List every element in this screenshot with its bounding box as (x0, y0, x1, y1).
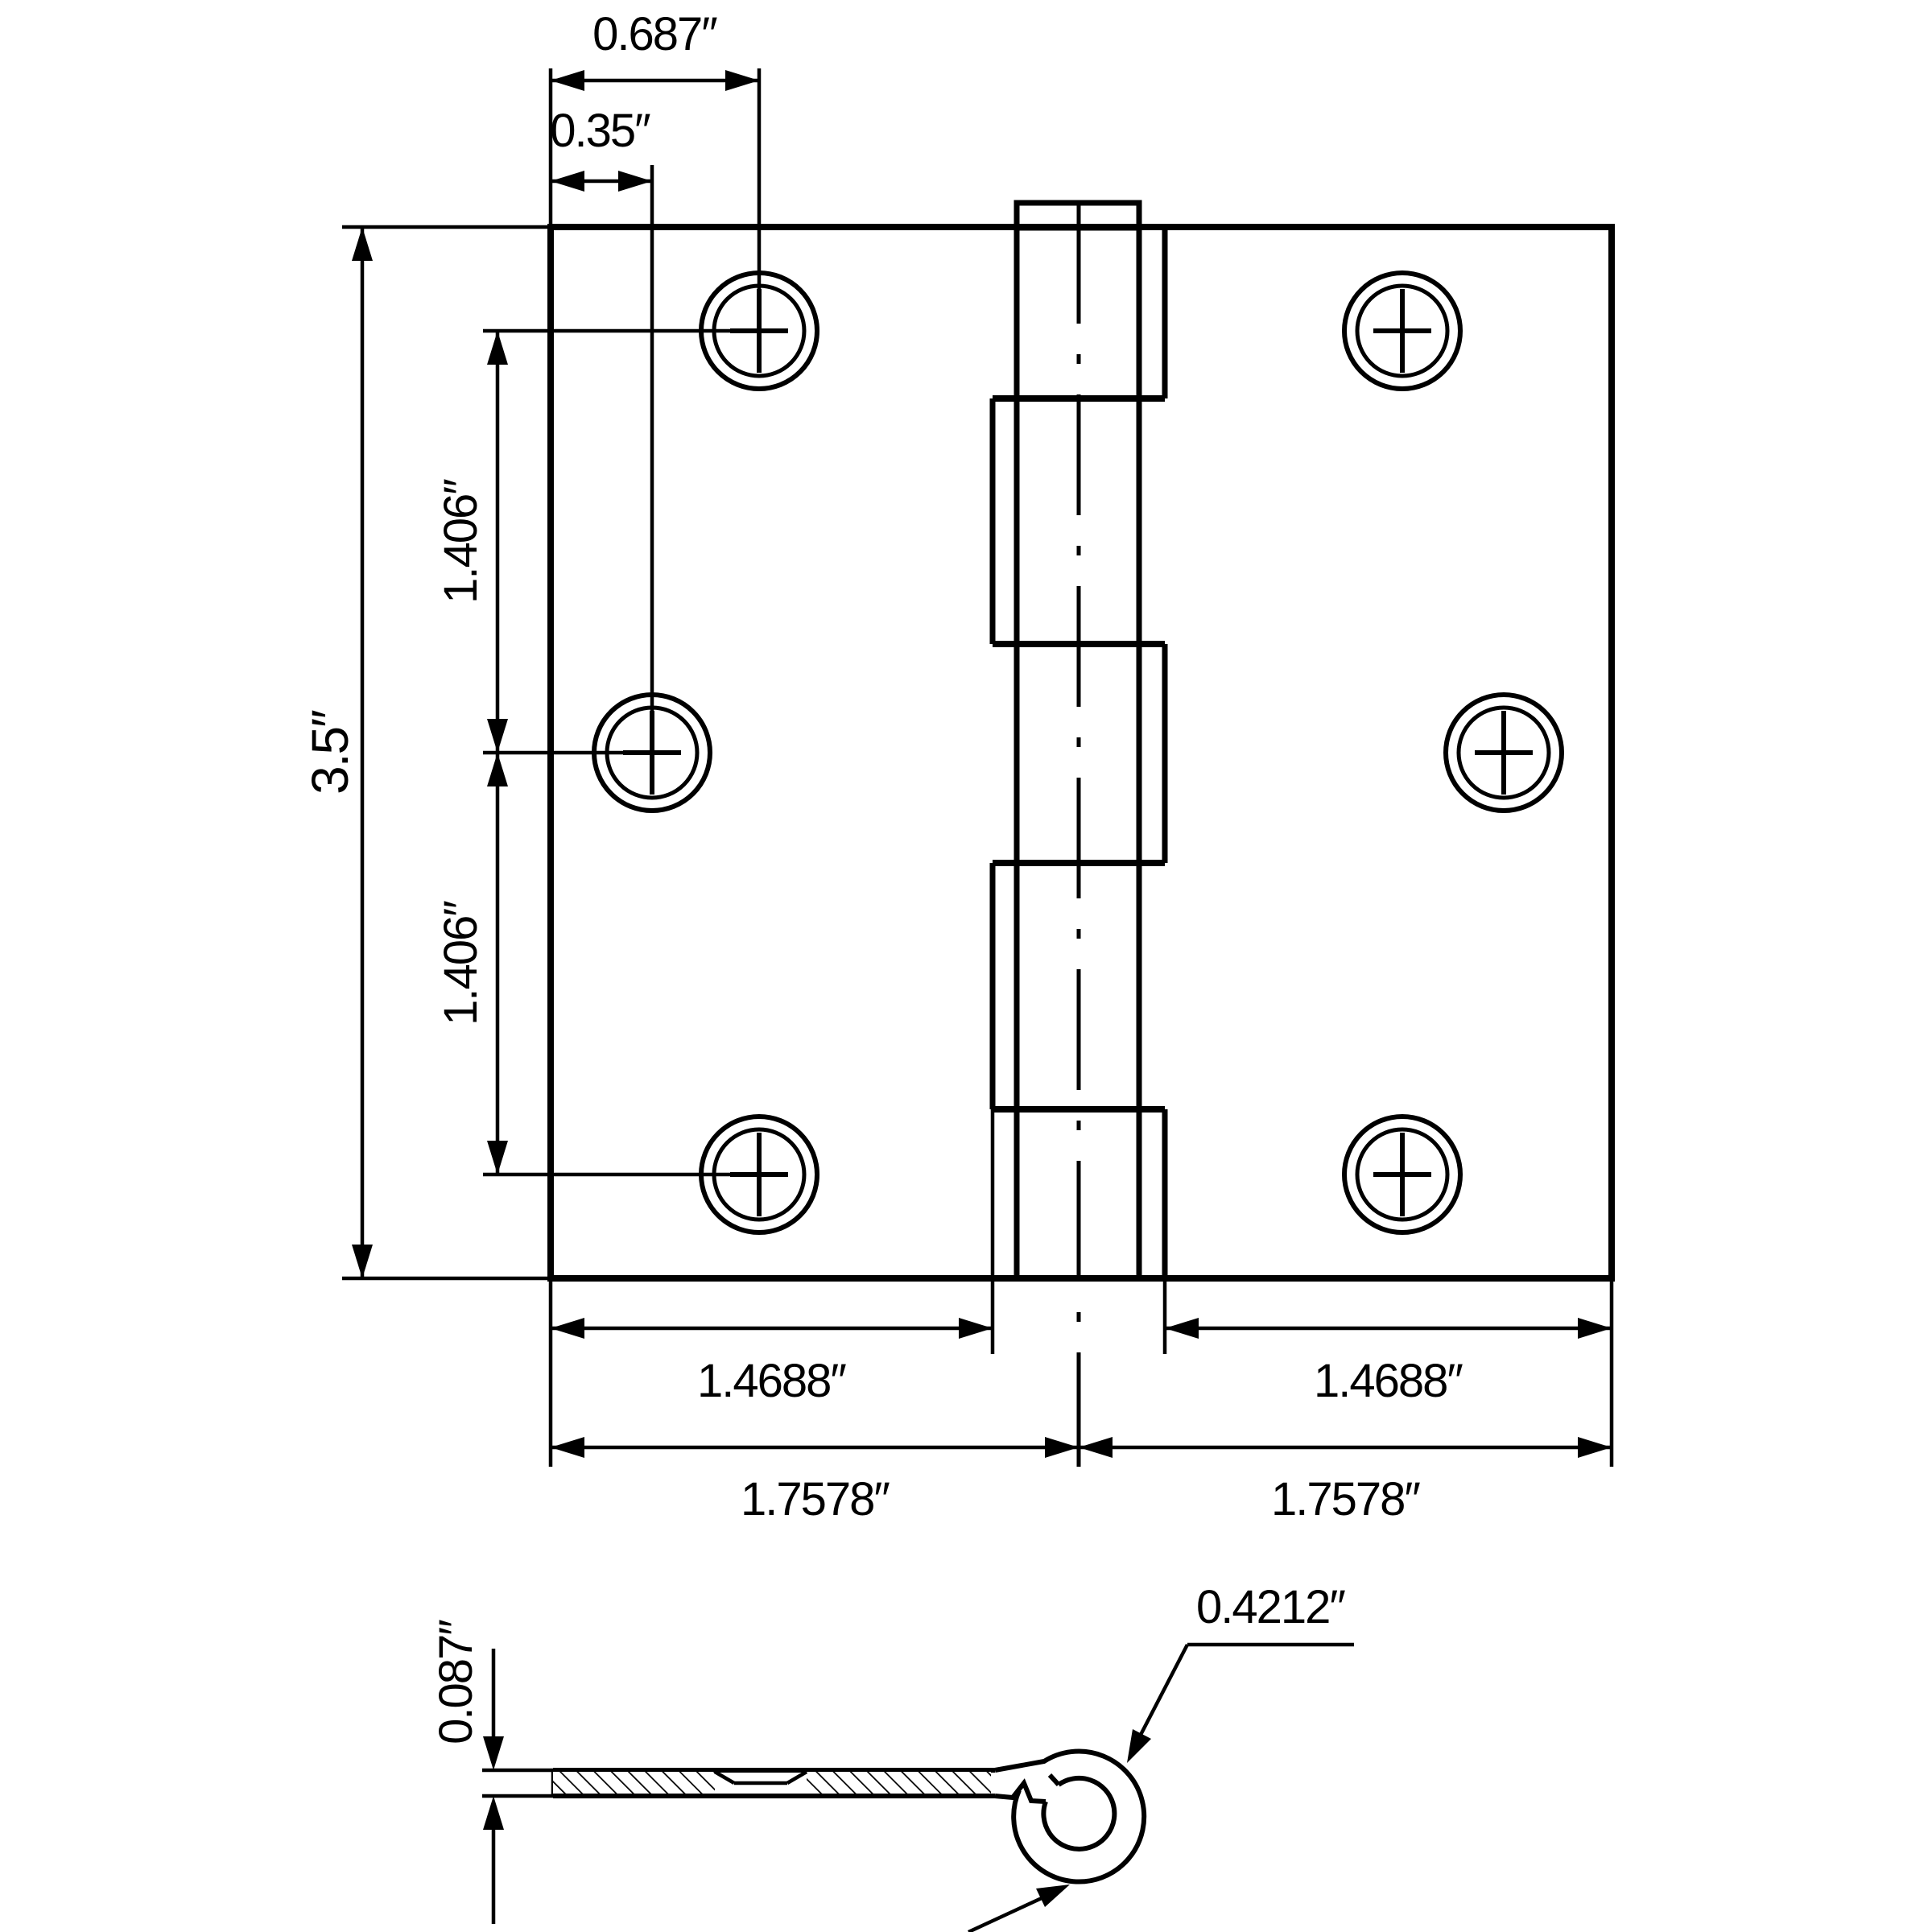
dim-label-top-hole-offset: 0.687″ (592, 8, 717, 60)
dim-label-mid-hole-offset: 0.35″ (550, 105, 650, 157)
dim-label-knuckle-diameter: 0.4212″ (1196, 1581, 1345, 1633)
dim-label-flat-width-right: 1.4688″ (1314, 1355, 1463, 1407)
dim-label-hole-spacing-upper: 1.406″ (435, 479, 487, 604)
drawing-canvas: 0.687″ 0.35″ 3.5″ 1.406″ 1.406″ 1.4688″ … (0, 0, 1932, 1932)
dim-label-plate-height: 3.5″ (301, 710, 359, 795)
dim-label-half-width-left: 1.7578″ (741, 1473, 890, 1525)
hatch-band-right (807, 1772, 991, 1794)
dim-label-half-width-right: 1.7578″ (1271, 1473, 1420, 1525)
dim-label-thickness: 0.087″ (430, 1620, 482, 1744)
face-view (551, 203, 1612, 1467)
hinge-technical-drawing: 0.687″ 0.35″ 3.5″ 1.406″ 1.406″ 1.4688″ … (0, 0, 1932, 1932)
dim-label-hole-spacing-lower: 1.406″ (435, 901, 487, 1026)
dim-label-flat-width-left: 1.4688″ (697, 1355, 846, 1407)
hatch-band-left (553, 1772, 715, 1794)
